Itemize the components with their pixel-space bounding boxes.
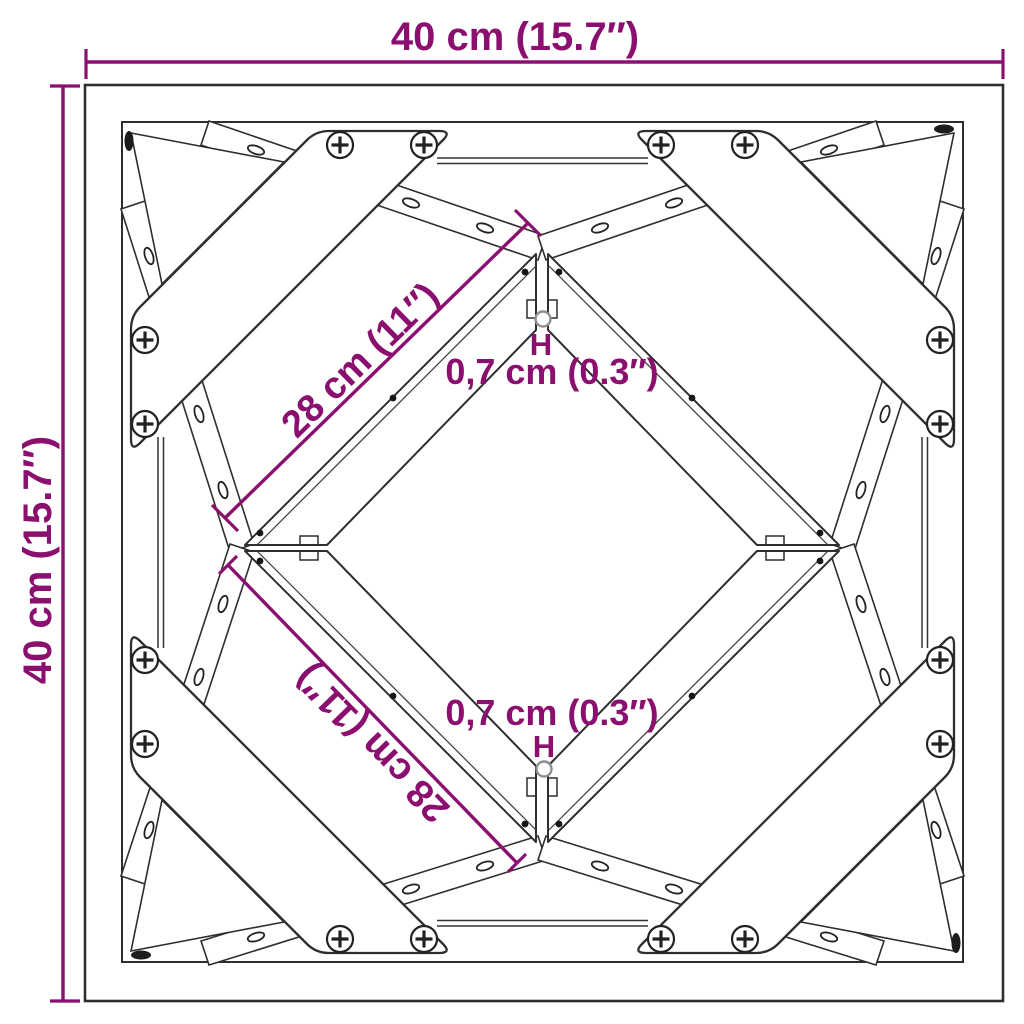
screw-icon bbox=[648, 132, 674, 158]
screw-icon bbox=[927, 647, 953, 673]
screw-icon bbox=[132, 411, 158, 437]
screw-icon bbox=[927, 411, 953, 437]
dimension-diagram: 40 cm (15.7″) 40 cm (15.7″) 28 cm (11″) … bbox=[0, 0, 1024, 1024]
hole-bottom-label: 0,7 cm (0.3″) bbox=[445, 692, 658, 733]
screw-icon bbox=[732, 132, 758, 158]
screw-icon bbox=[132, 731, 158, 757]
screw-icon bbox=[132, 327, 158, 353]
hole-marker-bottom: H bbox=[533, 729, 555, 764]
height-label: 40 cm (15.7″) bbox=[16, 436, 60, 684]
width-label: 40 cm (15.7″) bbox=[391, 15, 639, 59]
dimension-height-left: 40 cm (15.7″) bbox=[16, 86, 80, 1001]
hole-top-label: 0,7 cm (0.3″) bbox=[445, 351, 658, 392]
dimension-width-top: 40 cm (15.7″) bbox=[86, 15, 1003, 79]
screw-icon bbox=[732, 926, 758, 952]
screw-icon bbox=[327, 926, 353, 952]
screw-icon bbox=[648, 926, 674, 952]
hole-top bbox=[536, 312, 551, 327]
hole-bottom bbox=[537, 762, 552, 777]
screw-icon bbox=[411, 926, 437, 952]
screw-icon bbox=[327, 132, 353, 158]
screw-icon bbox=[132, 647, 158, 673]
screw-icon bbox=[927, 327, 953, 353]
frame-drawing: 40 cm (15.7″) 40 cm (15.7″) 28 cm (11″) … bbox=[0, 0, 1024, 1024]
screw-icon bbox=[411, 132, 437, 158]
screw-icon bbox=[927, 731, 953, 757]
